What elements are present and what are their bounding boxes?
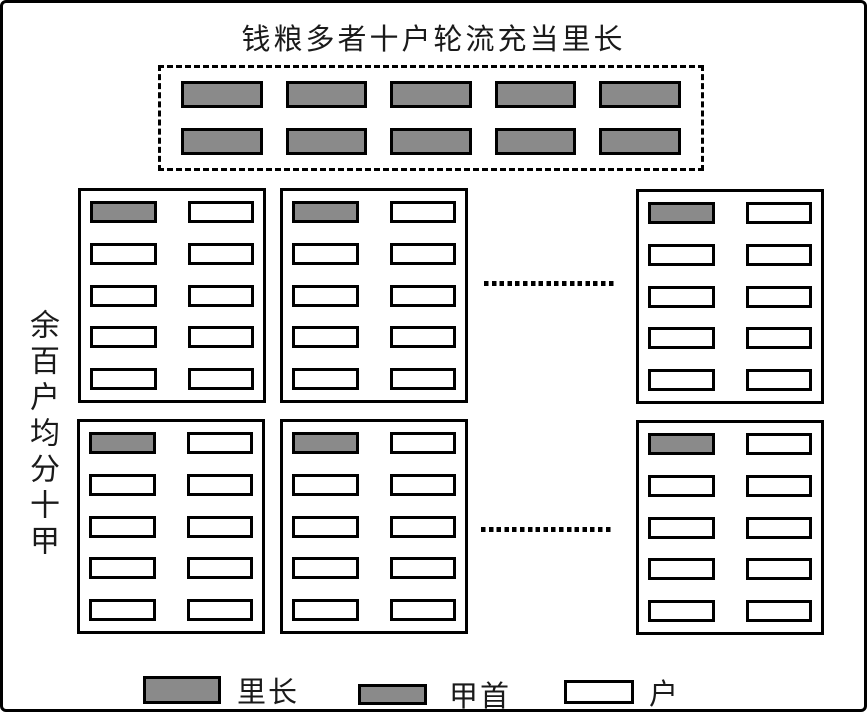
lizhang-household-rect — [599, 128, 681, 155]
household-rect — [89, 557, 156, 579]
household-rect — [292, 368, 359, 390]
jia-box — [636, 189, 824, 404]
household-rect — [648, 475, 715, 497]
lizhang-household-rect — [181, 81, 263, 108]
lizhang-household-rect — [390, 128, 472, 155]
household-rect — [292, 599, 359, 621]
household-rect — [390, 285, 457, 307]
legend-item-hu: 户 — [564, 671, 680, 712]
jiashou-rect — [648, 202, 715, 224]
ellipsis-dots-bottom-row — [481, 527, 613, 532]
lizhang-household-rect — [495, 128, 577, 155]
household-rect — [648, 327, 715, 349]
lizhang-household-rect — [599, 81, 681, 108]
household-rect — [292, 516, 359, 538]
household-rect — [390, 243, 457, 265]
legend-label-lizhang: 里长 — [237, 669, 299, 711]
household-rect — [188, 243, 255, 265]
jiashou-rect — [292, 432, 359, 454]
jia-box — [78, 188, 266, 403]
ellipsis-dots-top-row — [484, 281, 616, 286]
household-rect — [746, 433, 813, 455]
legend-item-jiashou: 甲首 — [358, 673, 511, 712]
jia-box — [636, 420, 824, 635]
lizhang-household-rect — [390, 81, 472, 108]
household-rect — [89, 516, 156, 538]
household-rect — [648, 286, 715, 308]
household-rect — [390, 599, 457, 621]
household-rect — [390, 201, 457, 223]
household-rect — [746, 327, 813, 349]
household-rect — [188, 285, 255, 307]
side-label: 余百户均分十甲 — [19, 309, 63, 561]
household-rect — [390, 368, 457, 390]
household-rect — [746, 517, 813, 539]
household-rect — [292, 326, 359, 348]
lizhang-swatch — [143, 676, 221, 704]
household-rect — [187, 557, 254, 579]
household-rect — [187, 599, 254, 621]
household-rect — [648, 517, 715, 539]
jiashou-rect — [292, 201, 359, 223]
household-rect — [292, 285, 359, 307]
household-rect — [90, 368, 157, 390]
household-rect — [89, 474, 156, 496]
jiashou-swatch — [358, 684, 427, 705]
household-rect — [746, 286, 813, 308]
legend-label-hu: 户 — [649, 671, 680, 712]
household-rect — [648, 558, 715, 580]
lizhang-household-rect — [286, 128, 368, 155]
household-rect — [90, 285, 157, 307]
jiashou-rect — [89, 432, 156, 454]
household-rect — [188, 201, 255, 223]
household-rect — [187, 516, 254, 538]
household-rect — [187, 474, 254, 496]
legend-item-lizhang: 里长 — [143, 669, 299, 711]
household-rect — [187, 432, 254, 454]
jia-box — [280, 419, 468, 634]
household-swatch — [564, 680, 634, 704]
lizhang-household-rect — [495, 81, 577, 108]
jiashou-rect — [648, 433, 715, 455]
household-rect — [292, 474, 359, 496]
lizhang-household-rect — [286, 81, 368, 108]
household-rect — [746, 600, 813, 622]
jiashou-rect — [90, 201, 157, 223]
household-rect — [292, 557, 359, 579]
household-rect — [648, 244, 715, 266]
household-rect — [390, 432, 457, 454]
lizhang-group-box — [158, 65, 704, 171]
household-rect — [90, 326, 157, 348]
household-rect — [390, 326, 457, 348]
jia-box — [280, 188, 468, 403]
household-rect — [292, 243, 359, 265]
household-rect — [390, 516, 457, 538]
household-rect — [90, 243, 157, 265]
diagram-frame: 钱粮多者十户轮流充当里长 余百户均分十甲 里长 甲首 户 — [0, 0, 867, 712]
household-rect — [746, 244, 813, 266]
household-rect — [746, 202, 813, 224]
household-rect — [390, 474, 457, 496]
household-rect — [89, 599, 156, 621]
household-rect — [188, 326, 255, 348]
household-rect — [746, 558, 813, 580]
household-rect — [188, 368, 255, 390]
household-rect — [746, 475, 813, 497]
diagram-title: 钱粮多者十户轮流充当里长 — [3, 16, 864, 58]
household-rect — [648, 600, 715, 622]
lizhang-household-rect — [181, 128, 263, 155]
household-rect — [648, 369, 715, 391]
household-rect — [746, 369, 813, 391]
jia-box — [77, 419, 265, 634]
legend-label-jiashou: 甲首 — [449, 673, 511, 712]
household-rect — [390, 557, 457, 579]
